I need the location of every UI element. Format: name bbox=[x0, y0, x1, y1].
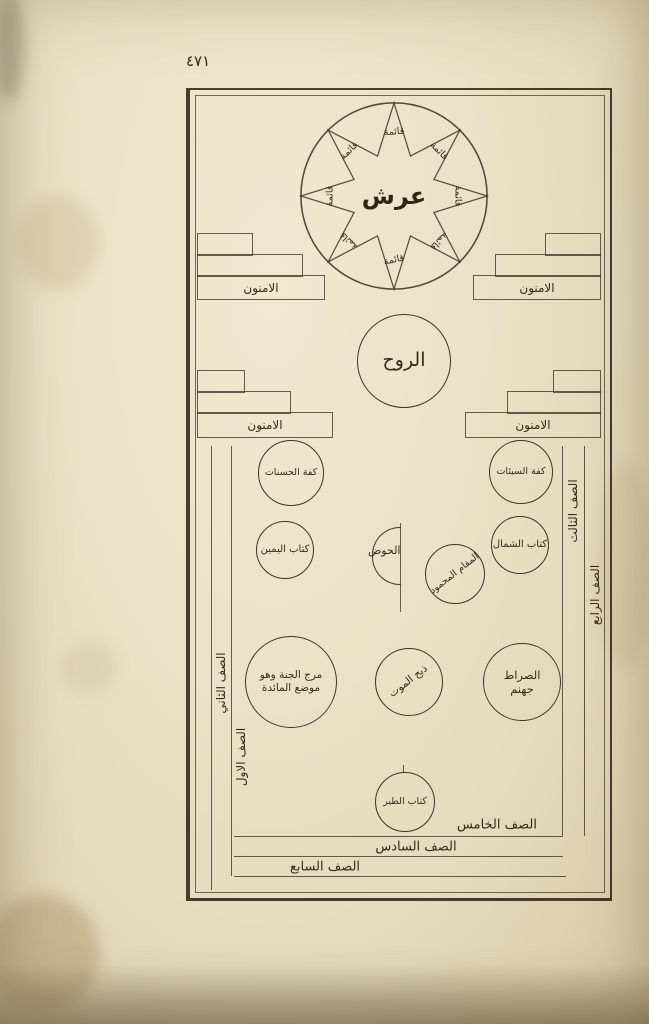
bridge-label-line2: جهنم bbox=[510, 682, 534, 696]
meadow-label-line2: موضع المائدة bbox=[262, 682, 320, 695]
stairs-upper-right-label: الامنون bbox=[473, 275, 601, 300]
row-seventh-line bbox=[234, 876, 566, 877]
aminun-label: الامنون bbox=[515, 418, 550, 432]
basin-line bbox=[400, 523, 401, 612]
aminun-label: الامنون bbox=[519, 281, 554, 295]
throne-label: عرش bbox=[362, 182, 426, 210]
paper-stain bbox=[18, 195, 98, 290]
bad-deeds-label: كفة السيئات bbox=[496, 466, 545, 478]
row-sixth-line bbox=[234, 856, 563, 857]
throne-star: عرش قائمة قائمة قائمة قائمة قائمة قائمة … bbox=[296, 98, 492, 294]
stairs-upper-right bbox=[545, 233, 601, 256]
praised-station-circle: المقام المحمود bbox=[425, 544, 485, 604]
paper-stain bbox=[62, 640, 117, 695]
book-bird-circle: كتاب الطير bbox=[375, 772, 435, 832]
bridge-label-line1: الصراط bbox=[504, 668, 541, 682]
row-seventh-label: الصف السابع bbox=[290, 860, 360, 875]
row-third-label: الصف الثالث bbox=[566, 479, 580, 542]
book-of-right-circle: كتاب اليمين bbox=[256, 521, 314, 579]
book-of-left-circle: كتاب الشمال bbox=[491, 516, 549, 574]
good-deeds-scale-circle: كفة الحسنات bbox=[258, 440, 324, 506]
bridge-circle: الصراط جهنم bbox=[483, 643, 561, 721]
stairs-mid-left bbox=[197, 391, 291, 414]
paper-stain bbox=[0, 0, 24, 102]
meadow-label-line1: مرج الجنة وهو bbox=[260, 669, 323, 682]
row-fifth-line bbox=[234, 836, 563, 837]
left-row-line-inner bbox=[231, 446, 232, 876]
stairs-upper-left bbox=[197, 233, 253, 256]
stairs-mid-left bbox=[197, 370, 245, 393]
stairs-upper-left-label: الامنون bbox=[197, 275, 325, 300]
folio-number: ٤٧١ bbox=[186, 52, 210, 70]
page-scan: ٤٧١ عرش قائمة قائمة قائمة قائمة قائمة قا… bbox=[0, 0, 649, 1024]
throne-pillar-label: قائمة bbox=[453, 186, 464, 207]
spirit-circle: الروح bbox=[357, 314, 451, 408]
book-of-left-label: كتاب الشمال bbox=[493, 539, 547, 552]
throne-pillar-label: قائمة bbox=[325, 186, 336, 207]
stairs-mid-left-label: الامنون bbox=[197, 412, 333, 438]
row-first-label: الصف الاول bbox=[234, 728, 248, 786]
left-row-line-outer bbox=[211, 446, 212, 890]
row-second-label: الصف الثاني bbox=[214, 652, 228, 713]
meadow-circle: مرج الجنة وهو موضع المائدة bbox=[245, 636, 337, 728]
good-deeds-label: كفة الحسنات bbox=[265, 467, 317, 479]
throne-pillar-label: قائمة bbox=[383, 126, 404, 138]
aminun-label: الامنون bbox=[247, 418, 282, 432]
stairs-upper-left bbox=[197, 254, 303, 277]
basin-label: الحوض bbox=[368, 544, 401, 557]
stairs-mid-right-label: الامنون bbox=[465, 412, 601, 438]
book-bird-label: كتاب الطير bbox=[383, 796, 427, 808]
bad-deeds-scale-circle: كفة السيئات bbox=[489, 440, 553, 504]
death-slaughter-label: ذبح الموت bbox=[387, 663, 431, 701]
spirit-label: الروح bbox=[383, 349, 426, 373]
right-row-line-inner bbox=[562, 446, 563, 836]
book-of-right-label: كتاب اليمين bbox=[261, 544, 310, 557]
row-fourth-label: الصف الرابع bbox=[588, 565, 602, 625]
right-row-line-outer bbox=[584, 446, 585, 836]
row-sixth-label: الصف السادس bbox=[375, 840, 456, 855]
aminun-label: الامنون bbox=[243, 281, 278, 295]
paper-stain bbox=[0, 895, 100, 1010]
page-bottom-shadow bbox=[0, 964, 649, 1024]
row-fifth-label: الصف الخامس bbox=[457, 818, 537, 833]
praised-station-label: المقام المحمود bbox=[428, 551, 482, 597]
stairs-mid-right bbox=[553, 370, 601, 393]
death-slaughter-circle: ذبح الموت bbox=[375, 648, 443, 716]
stairs-upper-right bbox=[495, 254, 601, 277]
stairs-mid-right bbox=[507, 391, 601, 414]
